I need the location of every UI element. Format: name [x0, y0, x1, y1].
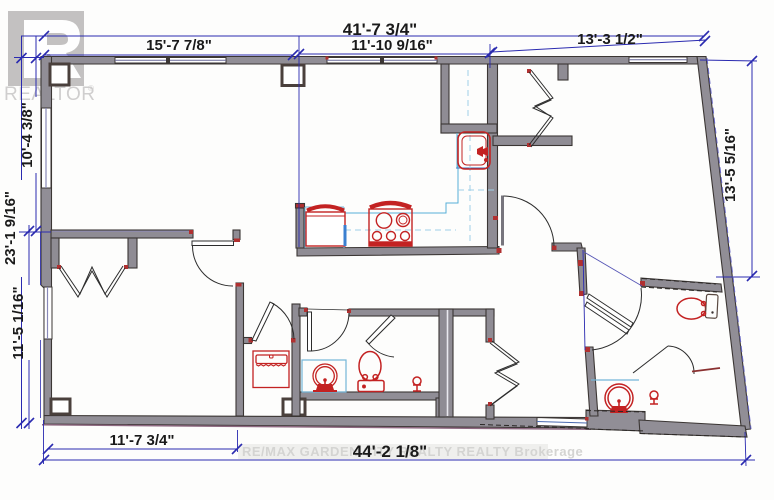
- svg-text:11'-10 9/16": 11'-10 9/16": [351, 37, 433, 54]
- svg-text:13'-5 5/16": 13'-5 5/16": [722, 128, 739, 202]
- svg-text:44'-2 1/8": 44'-2 1/8": [353, 442, 427, 461]
- svg-text:11'-7 3/4": 11'-7 3/4": [110, 432, 175, 449]
- svg-text:®: ®: [88, 84, 94, 93]
- svg-text:11'-5 1/16": 11'-5 1/16": [10, 286, 27, 359]
- svg-text:10'-4 3/8": 10'-4 3/8": [19, 102, 36, 168]
- svg-text:23'-1 9/16": 23'-1 9/16": [2, 191, 19, 265]
- svg-text:13'-3 1/2": 13'-3 1/2": [577, 31, 643, 48]
- svg-text:15'-7 7/8": 15'-7 7/8": [146, 37, 212, 54]
